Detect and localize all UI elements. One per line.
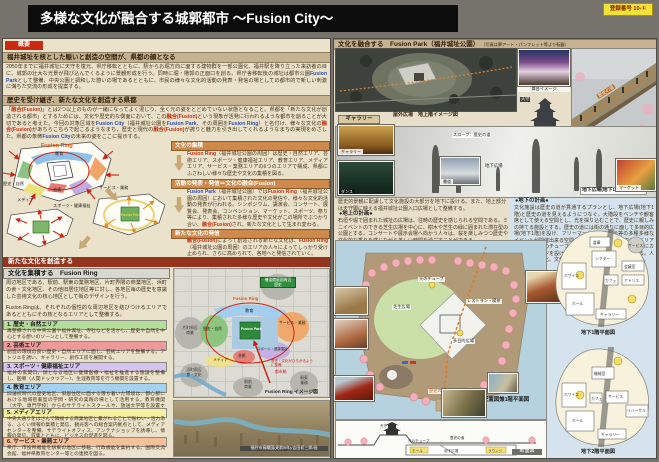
zone-label-art: 芸術	[53, 186, 61, 193]
stage-photo-caption: 舞台イメージ	[518, 87, 570, 92]
b2-room-cafe: カフェ	[591, 396, 603, 401]
page-title: 多様な文化が融合する城郭都市 〜Fusion City〜	[28, 5, 458, 32]
section-tube-label: 光のチューブ	[408, 438, 430, 443]
festival-photo	[488, 373, 518, 393]
b1-room-atelier: アトリエ	[624, 278, 639, 283]
market-photo: マーケット	[616, 159, 656, 191]
culture-box1-body: Fusion Ring（福井城址公園の周囲）は歴史・自然エリア、芸術エリア、スポ…	[187, 151, 328, 177]
section-road-label: 歴史の道	[450, 435, 465, 440]
b2-room-gallery: ギャラリー	[601, 432, 620, 437]
down-arrow-icon	[174, 197, 184, 213]
section1-body: 2050年までに福井城址に天守を復元、県庁移転とともに、駅からお堀方向に面する建…	[6, 64, 327, 91]
culture-box2-body: Fusion Park（福井城址公園）ではFusion Ring（福井城址公園の…	[187, 189, 328, 228]
b1-caption: 地下1階平面図	[580, 331, 616, 337]
culture-box3-body: 融合(Fusion)によって創造される新たな文化は、Fusion Ring（福井…	[187, 238, 328, 258]
gallery-photo: ギャラリー	[338, 125, 394, 155]
section2-body: 「融合(Fusion)」とは2つ以上のものが一緒になってよく混じり、全く元の姿を…	[6, 107, 327, 141]
b2-room-hall: ホール	[572, 418, 584, 423]
b1-room-service: サービス	[628, 243, 643, 248]
person-silhouette	[432, 145, 439, 193]
b2-room-machine: 機械室	[594, 371, 606, 376]
left-panel: 概要 福井城址を核とした賑いと創造の空間が、県都の顔となる 2050年までに福井…	[2, 38, 331, 459]
overview-tag: 概要	[5, 41, 43, 50]
tube-label: 光のチューブ	[418, 277, 445, 282]
map-zone-sports: スポーツ・健康福祉	[256, 348, 288, 352]
map-zone-service: サービス・業務	[278, 321, 307, 325]
event-photo	[334, 287, 368, 315]
create-culture-header: 新たな文化を創造する	[3, 257, 330, 267]
map-zone-history: 歴史・自然	[202, 327, 223, 331]
area6-body: 県庁、市役所機能を駅東の地区に移転、行政機能を集約する。国際交流会館、福井県教育…	[7, 446, 165, 458]
market-photo	[334, 319, 368, 349]
fusion-ring-map: Fusion Ring 養浩館庭園周辺歴史 教育 サービス・業務 歴史・自然 ス…	[173, 268, 330, 398]
diagram-fusion-ring-label: Fusion Ring	[41, 143, 73, 149]
b1-floor-plan: 倉庫 シアター ホワイエ ホール 会議室 アトリエ カフェ ギャラリー サービス	[550, 229, 654, 329]
siteplan-caption: 配置図兼1階平面図	[482, 397, 530, 403]
b1-room-cafe: カフェ	[605, 278, 617, 283]
map-yokokan-label: 養浩館庭園周辺歴史	[260, 277, 296, 288]
b1-room-gallery: ギャラリー	[600, 312, 619, 317]
restaurant-label: レストラン・喫茶	[466, 299, 502, 304]
map-fusion-park-label: Fusion Park	[240, 327, 263, 331]
b2-room-service: サービス	[608, 394, 623, 399]
section-tenshu-label: 天守	[380, 423, 388, 428]
b1-room-storage: 倉庫	[593, 240, 601, 245]
b1-room-theater: シアター	[595, 256, 610, 261]
map-zone-media: メディア	[212, 358, 229, 362]
ground-plan-title: ●地上の計画●	[338, 211, 373, 217]
plaza-rendering-caption: 屋外広場 地上階イメージ図	[392, 113, 459, 119]
birdseye-caption: 福井市鳥瞰図(昭和9年)/吉田初三郎/画	[240, 446, 328, 451]
section-hall-label: ホール	[412, 448, 423, 453]
ring-intro-1: 周辺地区である、駅前、駅東の業務地区、片町界隈の商業地区、浜町の食・文化地区、そ…	[6, 280, 167, 300]
person-silhouette	[496, 167, 500, 191]
right-header-note: （写真は夢アート・パンフレット等より転載）	[483, 42, 569, 47]
b2-room-foyer: ホワイエ	[564, 392, 579, 397]
map-zone-education: 教育	[244, 309, 254, 314]
zone-label-sports: スポーツ・健康福祉	[53, 202, 91, 209]
map-ekimae-label: 駅前商業	[234, 380, 262, 389]
zone-label-education: 教育	[55, 150, 63, 157]
map-ekihigashi-label: 駅東業務	[290, 376, 318, 385]
map-zone-art: 芸術	[237, 354, 247, 358]
calligraphy-photo: 書道	[440, 157, 480, 185]
area2-body: 創造の環境の良い歴史・自然エリアに面し、芸術エリアを整備する。アトリエを誘い、ギ…	[7, 350, 165, 362]
poster: 多様な文化が融合する城郭都市 〜Fusion City〜 登録番号 10-① 概…	[0, 0, 659, 462]
b2-room-rehearsal: リハーサル	[627, 408, 646, 413]
map-axis-note: 歴史・文化がひろがるように整備	[270, 359, 316, 367]
section-drawing: 天守 光のチューブ 歴史の道 地下広場 ホール ラウンジ 断面図	[336, 421, 546, 459]
map-axis-label: 都市軸	[274, 370, 287, 374]
zone-label-media: メディア	[17, 196, 33, 203]
slope-annotation: スロープ：歴史の道	[452, 133, 491, 138]
b2-caption: 地下2階平面図	[580, 450, 616, 456]
section2-title: 歴史を受け継ぎ、新たな文化を創造する県都	[3, 95, 330, 106]
b1-room-meeting: 会議室	[624, 264, 636, 269]
down-arrow-icon	[174, 155, 184, 171]
page-title-text: 多様な文化が融合する城郭都市 〜Fusion City〜	[40, 11, 333, 26]
zone-label-history: 歴史・自然	[3, 180, 24, 187]
castle-label: 天守	[520, 97, 530, 102]
lawn-label: 芝生広場	[392, 305, 411, 310]
culture-box2-title: 活動の発表・発信＝文化の融合(Fusion)	[171, 179, 330, 189]
map-caption: Fusion Ring イメージ図	[264, 390, 319, 396]
zone-label-service: サービス・業務	[99, 184, 129, 191]
b1-room-hall: ホール	[572, 301, 584, 306]
plaza-label: 地下広場	[484, 163, 504, 168]
section1-title: 福井城址を核とした賑いと創造の空間が、県都の顔となる	[3, 52, 330, 63]
person-silhouette	[532, 139, 540, 193]
multipurpose-label: 多目的広場	[452, 339, 475, 344]
diagram-fusion-park-label: Fusion Park	[121, 213, 141, 217]
culture-box1-title: 文化の集積	[171, 141, 330, 151]
registration-badge: 登録番号 10-①	[603, 3, 653, 16]
crowd-photo	[442, 389, 486, 417]
ring-intro-2: Fusion Ringは、それぞれの個性的な周辺地区を結びつけるエリアであるとと…	[6, 305, 167, 319]
person-silhouette	[574, 157, 579, 191]
area3-body: 福井の玄関口、顔となる地区に健康医療・福祉を推進する施設を整備し、医療（人間ドッ…	[7, 371, 165, 383]
fusion-ring-header: 文化を集積する Fusion Ring	[3, 268, 170, 279]
map-fusion-ring-label: Fusion Ring	[232, 296, 259, 301]
dance-photo: ダンス	[338, 161, 394, 195]
concept-diagram: Fusion Ring 教育 サービス・業務 歴史・自然 芸術 スポーツ・健康福…	[3, 139, 171, 253]
plaza-aerial-rendering	[336, 49, 516, 111]
birdseye-illustration: 福井市鳥瞰図(昭和9年)/吉田初三郎/画	[173, 400, 330, 457]
gallery-tag: ギャラリー	[338, 115, 380, 124]
underground-plan-title: ●地下の計画●	[514, 198, 549, 204]
section-caption: 断面図	[512, 449, 542, 455]
food-cart-photo	[334, 376, 374, 401]
b2-floor-plan: 機械室 ホワイエ ホール サービス カフェ ギャラリー リハーサル	[550, 347, 654, 449]
section-lounge-label: ラウンジ	[488, 448, 503, 453]
section-plaza-label: 地下広場	[444, 448, 459, 453]
right-panel: 文化を融合する Fusion Park（福井城址公園）（写真は夢アート・パンフレ…	[333, 38, 657, 459]
map-katamachi-label: 片町周辺商業	[176, 326, 204, 335]
stage-photo	[518, 49, 570, 86]
area1-body: 再整備される中央公園や福井城址、寺社などを活かし、歴史や自然を中心とする憩いのゾ…	[7, 329, 165, 341]
person-silhouette	[596, 149, 602, 191]
map-hamamachi-label: 浜町周辺食・文化	[180, 368, 208, 377]
b1-room-foyer: ホワイエ	[564, 273, 579, 278]
